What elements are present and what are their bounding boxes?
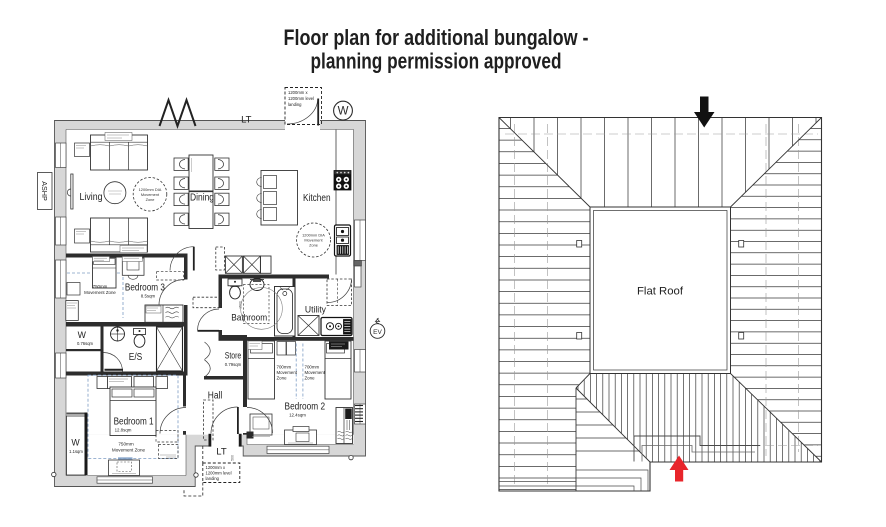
svg-text:W: W — [78, 330, 87, 340]
svg-text:700mm: 700mm — [305, 365, 320, 370]
svg-text:W: W — [71, 438, 80, 448]
svg-text:1200mm x: 1200mm x — [206, 465, 226, 470]
svg-text:E/S: E/S — [129, 352, 143, 363]
svg-text:Bedroom 3: Bedroom 3 — [125, 283, 165, 294]
svg-text:Movement: Movement — [305, 370, 326, 375]
svg-text:8.5sqm: 8.5sqm — [141, 294, 156, 299]
svg-text:Movement Zone: Movement Zone — [84, 290, 116, 295]
svg-text:750mm: 750mm — [93, 284, 108, 289]
svg-text:Zone: Zone — [309, 243, 318, 248]
svg-text:1200mm x: 1200mm x — [288, 90, 308, 95]
svg-text:landing: landing — [288, 102, 302, 107]
svg-text:LT: LT — [216, 446, 227, 457]
svg-text:LT: LT — [241, 115, 252, 126]
svg-text:EV: EV — [373, 329, 382, 336]
svg-text:0.79sqm: 0.79sqm — [225, 362, 242, 367]
svg-text:1200mm level: 1200mm level — [206, 471, 232, 476]
svg-text:0.76sqm: 0.76sqm — [77, 341, 94, 346]
svg-text:Movement Zone: Movement Zone — [112, 447, 146, 452]
svg-text:Store: Store — [225, 351, 242, 361]
svg-text:1200mm level: 1200mm level — [288, 96, 314, 101]
svg-text:Flat Roof: Flat Roof — [637, 286, 684, 298]
svg-text:planning permission approved: planning permission approved — [311, 49, 562, 74]
svg-text:1.1sqm: 1.1sqm — [69, 449, 83, 454]
svg-text:Bathroom: Bathroom — [231, 313, 267, 324]
svg-text:Zone: Zone — [305, 376, 316, 381]
svg-text:12.4sqm: 12.4sqm — [289, 413, 306, 418]
svg-text:landing: landing — [206, 476, 220, 481]
svg-text:700mm: 700mm — [277, 365, 292, 370]
svg-text:1500: 1500 — [239, 301, 243, 309]
svg-text:ASHP: ASHP — [40, 181, 49, 201]
svg-text:Bedroom 2: Bedroom 2 — [285, 402, 326, 413]
svg-text:Living: Living — [80, 192, 103, 203]
svg-text:Kitchen: Kitchen — [303, 193, 331, 204]
svg-text:Floor plan for additional bung: Floor plan for additional bungalow - — [284, 25, 589, 50]
svg-text:Movement: Movement — [277, 370, 298, 375]
svg-text:500: 500 — [231, 455, 235, 461]
svg-text:Utility: Utility — [305, 305, 326, 315]
svg-text:Dining: Dining — [190, 193, 214, 204]
svg-text:Zone: Zone — [277, 376, 288, 381]
svg-text:Bedroom 1: Bedroom 1 — [114, 417, 154, 428]
svg-text:12.8sqm: 12.8sqm — [115, 428, 132, 433]
svg-text:750mm: 750mm — [118, 442, 133, 447]
svg-text:W: W — [338, 106, 349, 118]
svg-text:Zone: Zone — [146, 197, 155, 202]
